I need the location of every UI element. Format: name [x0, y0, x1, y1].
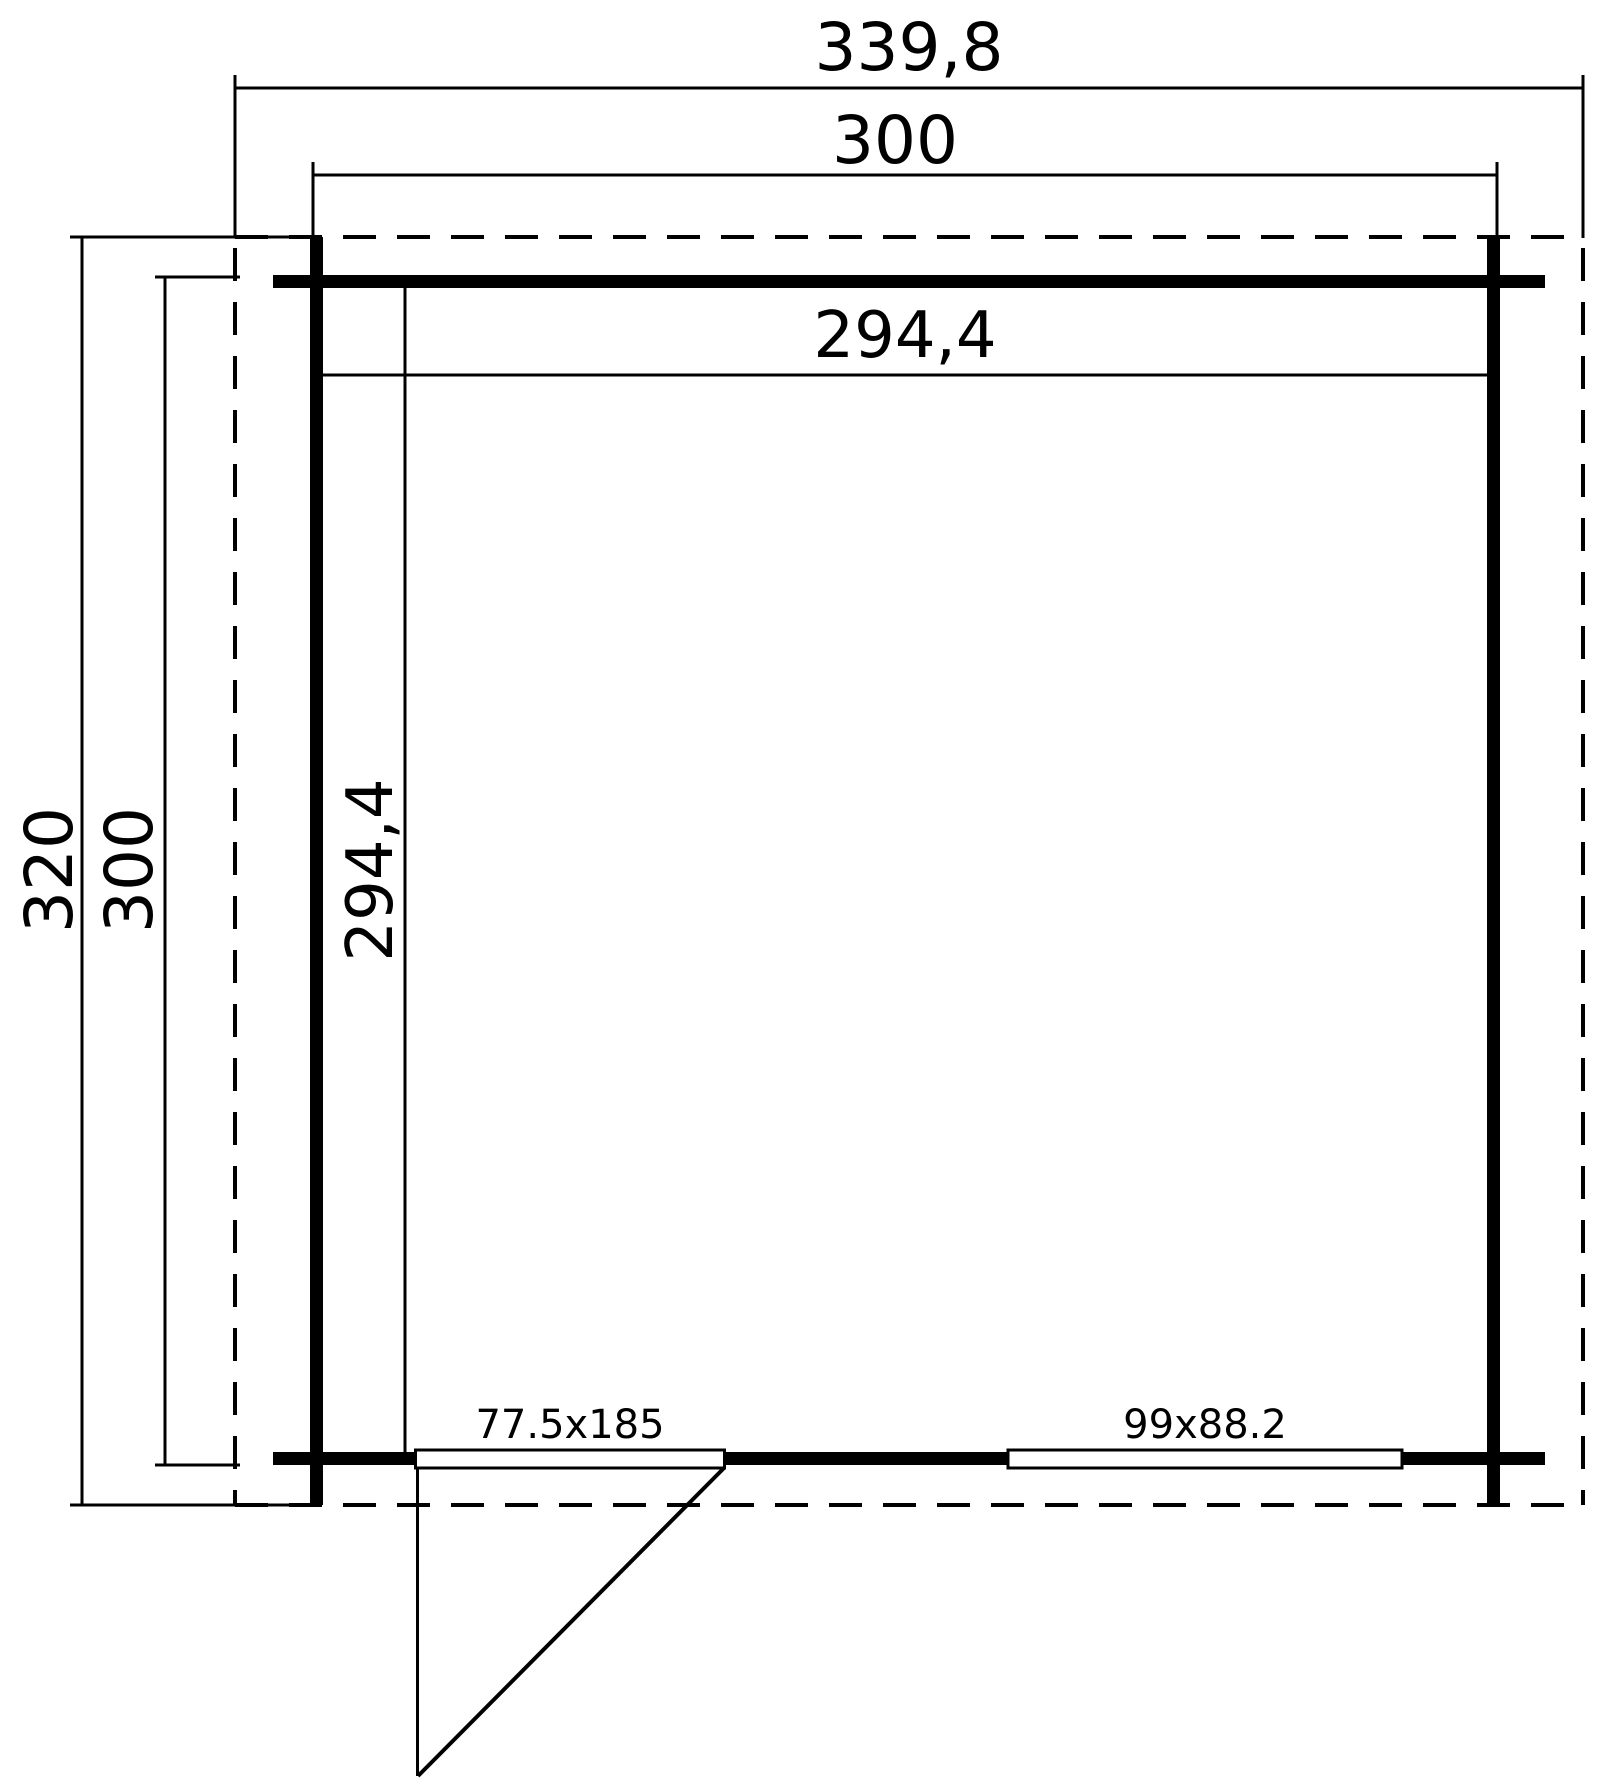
door-opening: [416, 1450, 725, 1468]
dimension-lines: [70, 75, 1583, 1505]
building-depth-label: 300: [91, 807, 168, 933]
door-swing-line: [418, 1468, 724, 1776]
building-width-label: 300: [832, 102, 958, 179]
inner-width-label: 294,4: [813, 299, 996, 373]
roof-outline: [235, 237, 1583, 1505]
window-size-label: 99x88.2: [1123, 1402, 1287, 1448]
roof-depth-label: 320: [11, 807, 88, 933]
inner-depth-label: 294,4: [334, 778, 408, 961]
door-size-label: 77.5x185: [475, 1402, 664, 1448]
roof-width-label: 339,8: [815, 9, 1004, 86]
floor-plan-drawing: 339,8 300 294,4 320 300 294,4 77.5x185 9…: [0, 0, 1611, 1787]
floor-plan-canvas: 339,8 300 294,4 320 300 294,4 77.5x185 9…: [0, 0, 1611, 1787]
window-opening: [1008, 1450, 1402, 1468]
walls: [273, 237, 1545, 1505]
